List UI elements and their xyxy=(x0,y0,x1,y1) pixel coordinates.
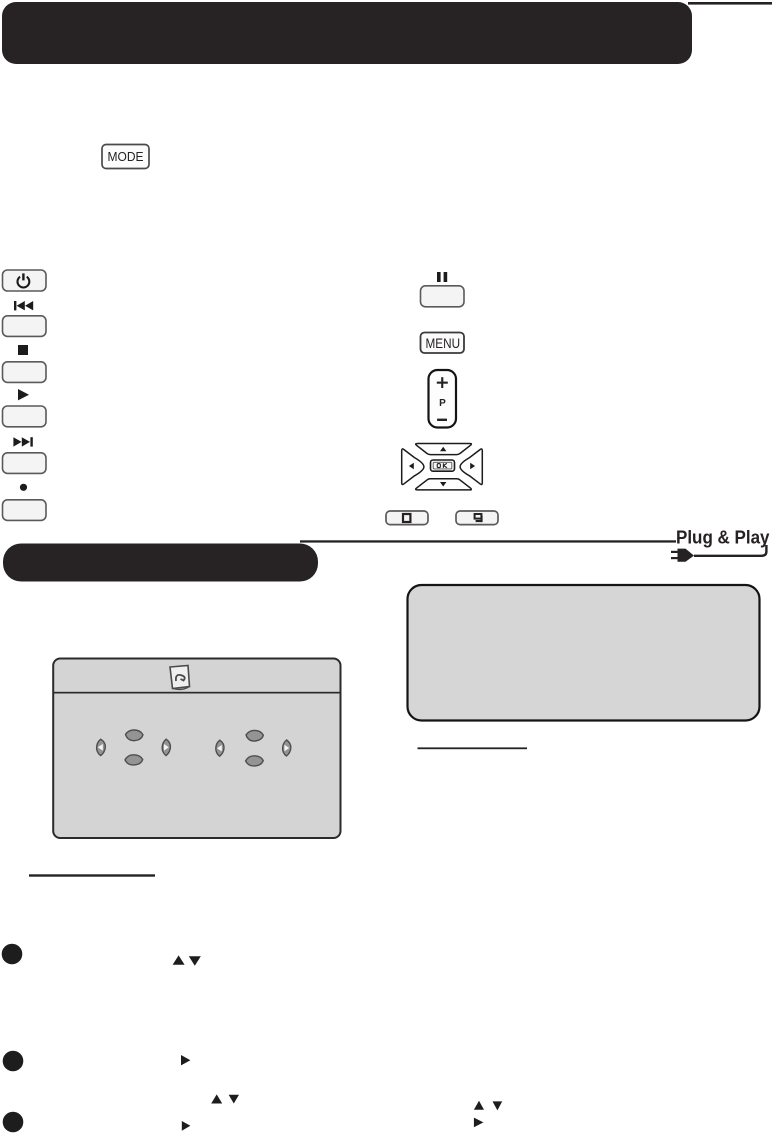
svg-text:P: P xyxy=(439,398,446,409)
svg-text:Plug & Play: Plug & Play xyxy=(676,528,770,548)
svg-text:MENU: MENU xyxy=(426,336,461,351)
svg-text:MODE: MODE xyxy=(108,150,144,164)
